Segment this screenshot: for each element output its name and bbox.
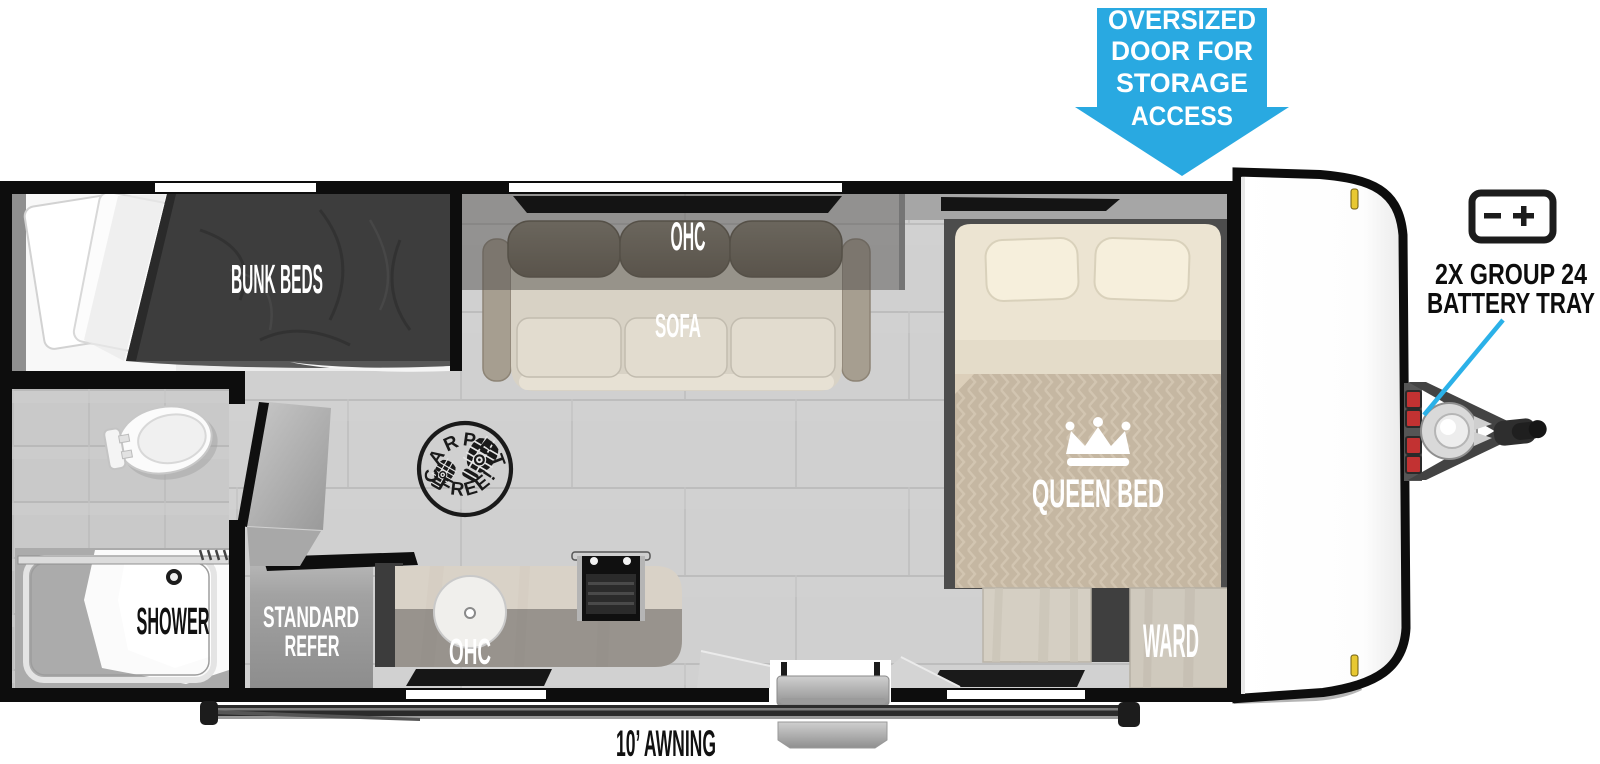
svg-text:STORAGE: STORAGE	[1116, 68, 1248, 98]
svg-text:2X GROUP 24: 2X GROUP 24	[1435, 259, 1587, 291]
svg-text:10’ AWNING: 10’ AWNING	[616, 723, 716, 759]
svg-text:REFER: REFER	[285, 630, 340, 663]
svg-text:OHC: OHC	[671, 215, 706, 259]
svg-text:BATTERY TRAY: BATTERY TRAY	[1427, 288, 1595, 320]
svg-text:QUEEN BED: QUEEN BED	[1032, 472, 1164, 516]
svg-text:BUNK BEDS: BUNK BEDS	[231, 256, 323, 302]
svg-text:OVERSIZED: OVERSIZED	[1108, 5, 1256, 35]
svg-text:DOOR FOR: DOOR FOR	[1111, 36, 1253, 66]
svg-text:WARD: WARD	[1143, 614, 1199, 667]
svg-text:SOFA: SOFA	[655, 307, 701, 344]
svg-text:OHC: OHC	[449, 631, 491, 672]
svg-text:ACCESS: ACCESS	[1131, 101, 1233, 131]
svg-text:SHOWER: SHOWER	[137, 601, 210, 643]
